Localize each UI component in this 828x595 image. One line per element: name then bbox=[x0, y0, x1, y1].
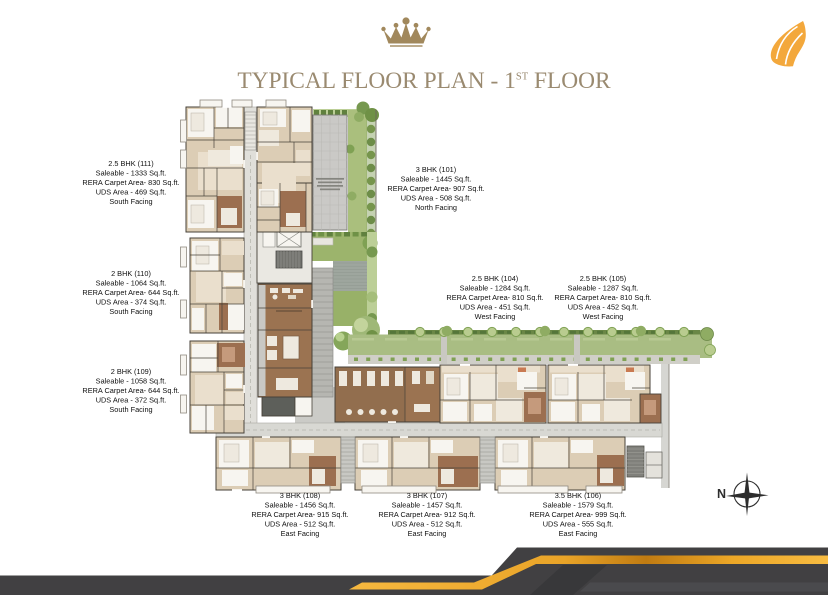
svg-text:Saleable - 1064 Sq.ft.: Saleable - 1064 Sq.ft. bbox=[96, 279, 167, 288]
svg-text:East Facing: East Facing bbox=[408, 529, 447, 538]
svg-text:TYPICAL FLOOR PLAN - 1ST FLOOR: TYPICAL FLOOR PLAN - 1ST FLOOR bbox=[237, 68, 611, 94]
svg-text:N: N bbox=[717, 487, 726, 501]
svg-text:RERA Carpet Area- 915 Sq.ft.: RERA Carpet Area- 915 Sq.ft. bbox=[251, 510, 348, 519]
svg-text:West Facing: West Facing bbox=[475, 312, 516, 321]
svg-text:RERA Carpet Area- 644 Sq.ft.: RERA Carpet Area- 644 Sq.ft. bbox=[82, 386, 179, 395]
svg-text:Saleable - 1058 Sq.ft.: Saleable - 1058 Sq.ft. bbox=[96, 377, 167, 386]
svg-text:RERA Carpet Area- 912 Sq.ft.: RERA Carpet Area- 912 Sq.ft. bbox=[378, 510, 475, 519]
svg-text:Saleable - 1333 Sq.ft.: Saleable - 1333 Sq.ft. bbox=[96, 169, 167, 178]
svg-text:UDS Area - 452 Sq.ft.: UDS Area - 452 Sq.ft. bbox=[568, 303, 639, 312]
svg-text:Saleable - 1445 Sq.ft.: Saleable - 1445 Sq.ft. bbox=[401, 175, 472, 184]
svg-text:Saleable - 1287 Sq.ft.: Saleable - 1287 Sq.ft. bbox=[568, 284, 639, 293]
svg-text:2 BHK (110): 2 BHK (110) bbox=[111, 269, 151, 278]
svg-text:RERA Carpet Area- 830 Sq.ft.: RERA Carpet Area- 830 Sq.ft. bbox=[82, 178, 179, 187]
svg-text:Saleable - 1284 Sq.ft.: Saleable - 1284 Sq.ft. bbox=[460, 284, 531, 293]
svg-text:3.5 BHK (106): 3.5 BHK (106) bbox=[555, 491, 602, 500]
svg-text:Saleable - 1457 Sq.ft.: Saleable - 1457 Sq.ft. bbox=[392, 501, 463, 510]
svg-text:UDS Area - 374 Sq.ft.: UDS Area - 374 Sq.ft. bbox=[96, 298, 167, 307]
svg-text:RERA Carpet Area- 810 Sq.ft.: RERA Carpet Area- 810 Sq.ft. bbox=[446, 293, 543, 302]
svg-text:East Facing: East Facing bbox=[281, 529, 320, 538]
svg-text:UDS Area - 451 Sq.ft.: UDS Area - 451 Sq.ft. bbox=[460, 303, 531, 312]
svg-text:RERA Carpet Area- 999 Sq.ft.: RERA Carpet Area- 999 Sq.ft. bbox=[529, 510, 626, 519]
svg-text:UDS Area - 512 Sq.ft.: UDS Area - 512 Sq.ft. bbox=[265, 520, 336, 529]
svg-text:3 BHK (108): 3 BHK (108) bbox=[280, 491, 320, 500]
svg-text:3 BHK (101): 3 BHK (101) bbox=[416, 165, 456, 174]
svg-text:UDS Area - 372 Sq.ft.: UDS Area - 372 Sq.ft. bbox=[96, 396, 167, 405]
svg-text:UDS Area - 469 Sq.ft.: UDS Area - 469 Sq.ft. bbox=[96, 188, 167, 197]
svg-text:2 BHK (109): 2 BHK (109) bbox=[111, 367, 151, 376]
svg-text:South Facing: South Facing bbox=[109, 405, 152, 414]
svg-text:RERA Carpet Area- 907 Sq.ft.: RERA Carpet Area- 907 Sq.ft. bbox=[387, 184, 484, 193]
svg-text:Saleable - 1456 Sq.ft.: Saleable - 1456 Sq.ft. bbox=[265, 501, 336, 510]
svg-text:West Facing: West Facing bbox=[583, 312, 624, 321]
svg-text:Saleable - 1579 Sq.ft.: Saleable - 1579 Sq.ft. bbox=[543, 501, 614, 510]
svg-text:East Facing: East Facing bbox=[559, 529, 598, 538]
svg-text:South Facing: South Facing bbox=[109, 197, 152, 206]
svg-text:RERA Carpet Area- 810 Sq.ft.: RERA Carpet Area- 810 Sq.ft. bbox=[554, 293, 651, 302]
svg-text:North Facing: North Facing bbox=[415, 203, 457, 212]
svg-text:UDS Area - 508 Sq.ft.: UDS Area - 508 Sq.ft. bbox=[401, 194, 472, 203]
svg-text:UDS Area - 555 Sq.ft.: UDS Area - 555 Sq.ft. bbox=[543, 520, 614, 529]
svg-text:South Facing: South Facing bbox=[109, 307, 152, 316]
svg-text:UDS Area - 512 Sq.ft.: UDS Area - 512 Sq.ft. bbox=[392, 520, 463, 529]
svg-text:2.5 BHK (104): 2.5 BHK (104) bbox=[472, 274, 519, 283]
svg-text:3 BHK (107): 3 BHK (107) bbox=[407, 491, 447, 500]
svg-text:RERA Carpet Area- 644 Sq.ft.: RERA Carpet Area- 644 Sq.ft. bbox=[82, 288, 179, 297]
svg-text:2.5 BHK (105): 2.5 BHK (105) bbox=[580, 274, 627, 283]
svg-text:2.5 BHK (111): 2.5 BHK (111) bbox=[108, 159, 153, 168]
